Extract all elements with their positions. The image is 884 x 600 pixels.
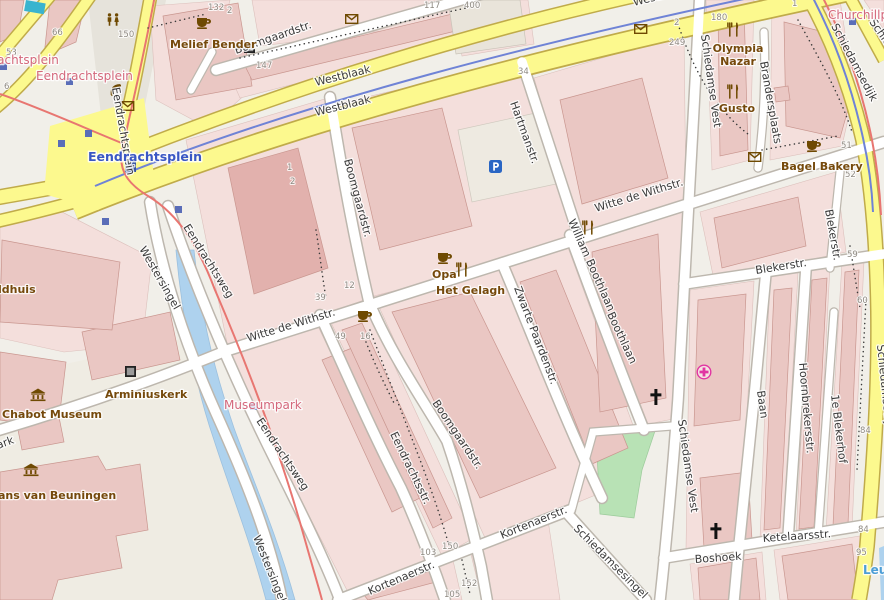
house-number: 1 [287, 163, 292, 173]
house-number: 180 [711, 13, 727, 23]
poi-label: ans van Beuningen [0, 489, 116, 502]
house-number: 12 [344, 281, 355, 291]
house-number: 2 [674, 18, 679, 28]
poi-label: Gusto [719, 102, 756, 115]
house-number: 2 [227, 6, 232, 16]
poi-label: Chabot Museum [2, 408, 102, 421]
place-label: Churchillplein [828, 8, 884, 22]
house-number: 49 [335, 332, 346, 342]
house-number: 59 [847, 250, 858, 260]
poi-label: Arminiuskerk [105, 388, 188, 401]
metro-icon [175, 206, 182, 213]
place-label: Eendrachtsplein [0, 53, 59, 67]
house-number: 103 [420, 548, 436, 558]
poi-label: Nazar [720, 55, 756, 68]
house-number: 150 [118, 30, 134, 40]
house-number: 16 [360, 332, 371, 342]
parking-icon [489, 160, 502, 173]
house-number: 400 [464, 1, 480, 11]
street-label: Westblaak [632, 0, 691, 9]
metro-station-label: Eendrachtsplein [88, 149, 202, 164]
house-number: 39 [315, 293, 326, 303]
house-number: 6 [4, 82, 9, 92]
house-number: 117 [424, 1, 440, 11]
house-number: 1 [792, 0, 797, 9]
metro-icon [85, 130, 92, 137]
metro-icon [102, 218, 109, 225]
house-number: 51 [841, 141, 852, 151]
landmark-icon [126, 367, 135, 376]
house-number: 132 [208, 3, 224, 13]
metro-icon [58, 140, 65, 147]
pharmacy-icon [697, 365, 711, 379]
house-number: 152 [461, 579, 477, 589]
water-label: Leu [863, 563, 884, 577]
house-number: 84 [858, 525, 869, 535]
house-number: 150 [442, 542, 458, 552]
poi-label: ldhuis [0, 283, 36, 296]
poi-label: Olympia [713, 42, 764, 55]
house-number: 66 [52, 28, 63, 38]
map-canvas[interactable]: WestblaakWestblaakWestblaakBoomgaardstr.… [0, 0, 884, 600]
house-number: 147 [256, 61, 272, 71]
house-number: 249 [669, 38, 685, 48]
map-svg: WestblaakWestblaakWestblaakBoomgaardstr.… [0, 0, 884, 600]
poi-label: Melief Bender [170, 38, 257, 51]
house-number: 105 [444, 590, 460, 600]
house-number: 84 [860, 426, 871, 436]
street-label: Schiedamsesingel [571, 522, 650, 600]
house-number: 60 [857, 296, 868, 306]
place-label: Museumpark [224, 398, 302, 412]
poi-label: Het Gelagh [436, 284, 505, 297]
house-number: 95 [856, 548, 867, 558]
house-number: 34 [518, 67, 529, 77]
poi-label: Bagel Bakery [781, 160, 863, 173]
poi-label: Opa [432, 268, 457, 281]
place-label: Eendrachtsplein [36, 69, 133, 83]
house-number: 2 [290, 177, 295, 187]
